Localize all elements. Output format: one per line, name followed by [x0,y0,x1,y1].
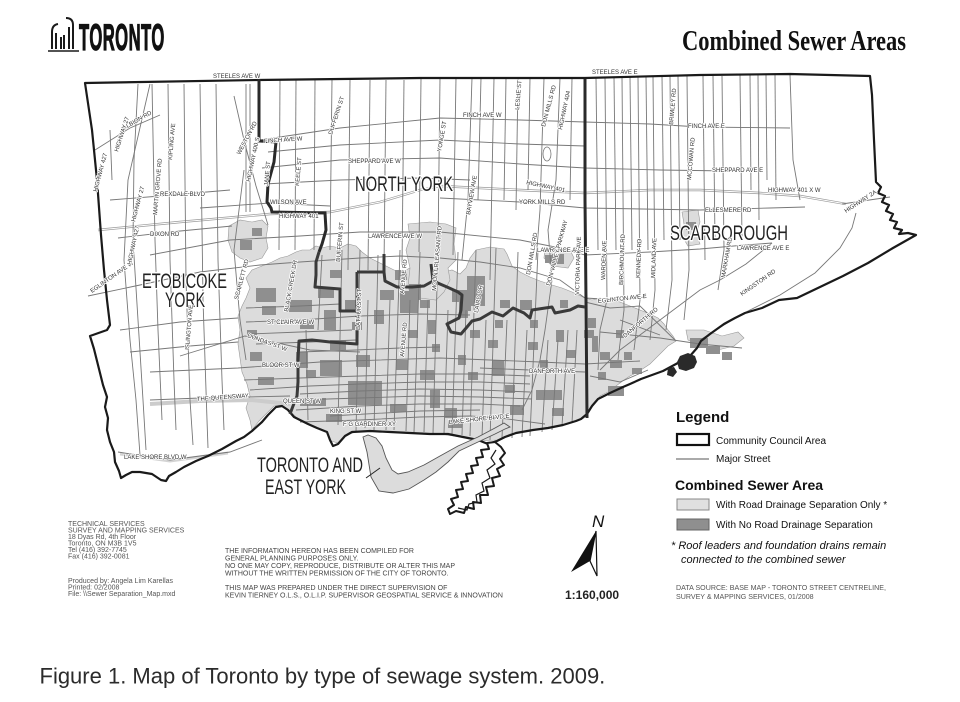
svg-text:connected to the combined sewe: connected to the combined sewer [681,554,847,566]
svg-text:Fax (416) 392-0081: Fax (416) 392-0081 [68,554,130,561]
svg-text:STEELES AVE W: STEELES AVE W [213,74,261,80]
svg-text:Combined Sewer Areas: Combined Sewer Areas [682,26,906,57]
svg-text:NORTH YORK: NORTH YORK [355,173,453,196]
svg-text:* Roof leaders and foundation: * Roof leaders and foundation drains rem… [671,540,886,552]
svg-text:NO ONE MAY COPY, REPRODUCE, DI: NO ONE MAY COPY, REPRODUCE, DISTRIBUTE O… [225,563,455,570]
svg-text:KEVIN TIERNEY O.L.S., O.L.I.P.: KEVIN TIERNEY O.L.S., O.L.I.P. SUPERVISO… [225,593,503,600]
svg-text:N: N [592,512,605,531]
svg-text:KING ST W: KING ST W [330,409,362,415]
svg-text:Legend: Legend [676,409,729,426]
svg-text:THE INFORMATION HEREON HAS BEE: THE INFORMATION HEREON HAS BEEN COMPILED… [225,548,414,555]
svg-text:1:160,000: 1:160,000 [565,588,619,602]
svg-text:TORONTO: TORONTO [79,18,165,59]
svg-text:LAKE SHORE BLVD W: LAKE SHORE BLVD W [124,455,187,461]
svg-text:SHEPPARD AVE E: SHEPPARD AVE E [712,168,763,174]
svg-text:HIGHWAY 401: HIGHWAY 401 [279,214,319,220]
svg-text:FINCH AVE E: FINCH AVE E [688,124,725,130]
svg-text:YORK: YORK [165,289,205,312]
svg-text:STEELES AVE E: STEELES AVE E [592,70,638,76]
svg-text:REXDALE BLVD: REXDALE BLVD [160,192,206,198]
svg-text:FINCH AVE W: FINCH AVE W [463,113,502,119]
svg-text:DATA SOURCE: BASE MAP - TORONT: DATA SOURCE: BASE MAP - TORONTO STREET C… [676,584,886,592]
svg-text:HIGHWAY 401 X W: HIGHWAY 401 X W [768,188,821,194]
svg-text:YORK MILLS RD: YORK MILLS RD [519,200,566,206]
svg-text:LAWRENCE AVE E: LAWRENCE AVE E [737,246,789,252]
svg-text:With Road Drainage Separation: With Road Drainage Separation Only * [716,500,887,511]
svg-text:ST CLAIR AVE W: ST CLAIR AVE W [267,320,314,326]
svg-text:GENERAL PLANNING PURPOSES ONLY: GENERAL PLANNING PURPOSES ONLY. [225,556,358,563]
svg-text:DIXON RD: DIXON RD [150,232,180,238]
svg-text:QUEEN ST W: QUEEN ST W [283,399,321,405]
svg-text:F G GARDINER XY: F G GARDINER XY [343,422,396,428]
svg-text:SURVEY & MAPPING SERVICES, 01/: SURVEY & MAPPING SERVICES, 01/2008 [676,593,814,601]
svg-text:BLOOR ST W: BLOOR ST W [262,363,300,369]
svg-text:Figure 1. Map of Toronto by ty: Figure 1. Map of Toronto by type of sewa… [40,664,606,689]
svg-text:THIS MAP WAS PREPARED UNDER TH: THIS MAP WAS PREPARED UNDER THE DIRECT S… [225,585,447,592]
svg-text:LAWRENCE AVE W: LAWRENCE AVE W [368,234,422,240]
svg-text:DANFORTH AVE: DANFORTH AVE [529,369,575,375]
svg-text:SHEPPARD AVE W: SHEPPARD AVE W [348,159,401,165]
svg-text:Major Street: Major Street [716,454,771,465]
svg-text:ELLESMERE RD: ELLESMERE RD [705,208,752,214]
svg-text:EAST YORK: EAST YORK [265,476,346,499]
svg-text:WILSON AVE: WILSON AVE [270,200,307,206]
svg-text:With No Road Drainage Separati: With No Road Drainage Separation [716,520,873,531]
svg-text:TORONTO AND: TORONTO AND [257,454,363,477]
svg-text:File: \\Sewer Separation_Map.m: File: \\Sewer Separation_Map.mxd [68,591,175,598]
svg-text:WITHOUT THE WRITTEN PERMISSION: WITHOUT THE WRITTEN PERMISSION OF THE CI… [225,571,449,578]
svg-text:Community Council Area: Community Council Area [716,436,826,447]
svg-text:Combined Sewer Area: Combined Sewer Area [675,477,823,493]
